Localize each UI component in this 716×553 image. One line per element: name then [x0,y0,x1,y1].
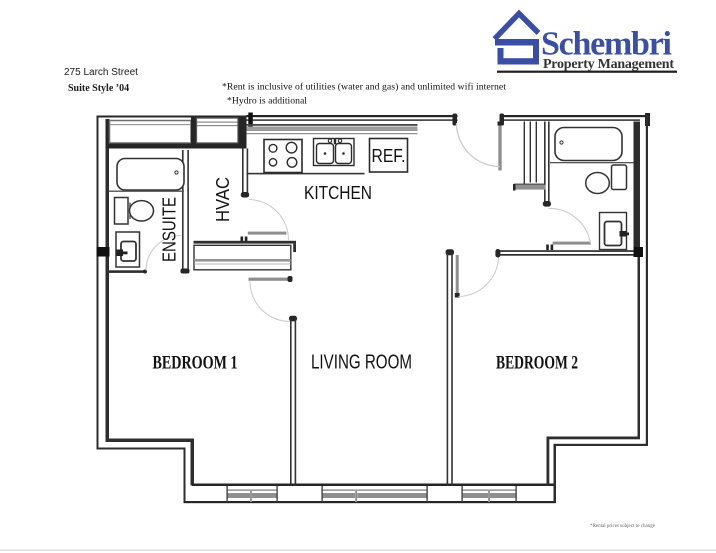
svg-text:BEDROOM 1: BEDROOM 1 [153,353,238,374]
svg-text:ENSUITE: ENSUITE [158,197,179,262]
svg-text:Suite Style ’04: Suite Style ’04 [68,83,129,94]
svg-text:LIVING ROOM: LIVING ROOM [311,352,412,374]
svg-text:*Rent is inclusive of utilitie: *Rent is inclusive of utilities (water a… [222,82,506,93]
svg-text:*Hydro is additional: *Hydro is additional [227,96,307,107]
svg-text:KITCHEN: KITCHEN [304,183,372,203]
svg-text:REF.: REF. [372,146,406,166]
svg-text:BEDROOM 2: BEDROOM 2 [496,353,578,374]
svg-text:*Rental prices subject to chan: *Rental prices subject to change [590,524,656,529]
svg-text:HVAC: HVAC [213,177,233,222]
svg-text:275 Larch Street: 275 Larch Street [64,67,138,78]
svg-text:Property Management: Property Management [543,57,674,72]
